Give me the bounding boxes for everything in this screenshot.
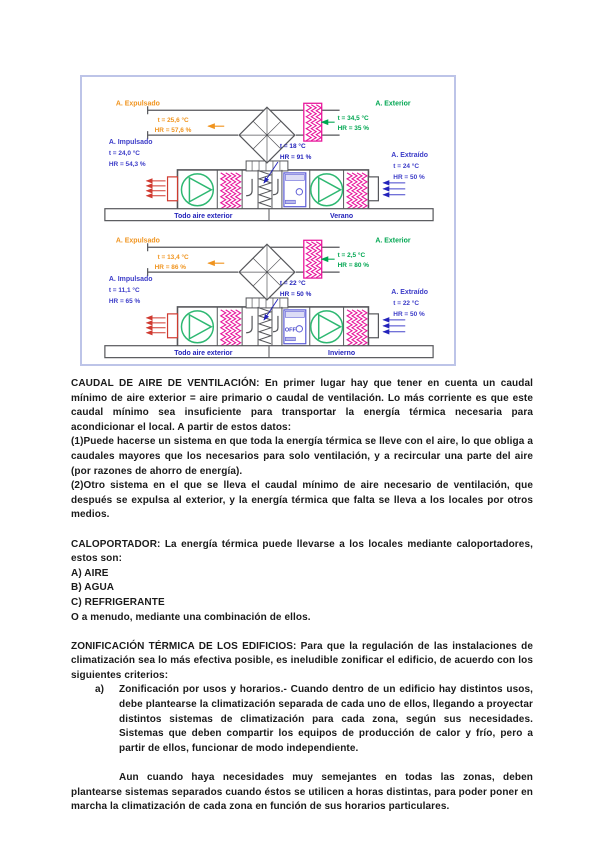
- expulsado-temp: t = 25,6 °C: [158, 116, 189, 124]
- extraido-hr: HR = 50 %: [393, 174, 425, 181]
- outdoor-coil-icon: [304, 103, 322, 141]
- document-page: Todo aire exterior Verano A. Expulsado t…: [0, 0, 600, 848]
- paragraph-zonificacion: ZONIFICACIÓN TÉRMICA DE LOS EDIFICIOS: P…: [71, 640, 533, 684]
- option-refrigerante: C) REFRIGERANTE: [71, 596, 533, 611]
- supply-air-arrows-icon: [147, 177, 178, 201]
- exterior-label: A. Exterior: [375, 237, 410, 244]
- cooling-box: [284, 173, 306, 207]
- expulsado-hr: HR = 57,6 %: [155, 127, 192, 134]
- extraido-label: A. Extraído: [391, 152, 428, 159]
- impulsado-temp: t = 24,0 °C: [109, 149, 140, 157]
- ahu-unit-invierno: OFF Todo aire exterior Invierno: [83, 222, 451, 362]
- paragraph-combinacion: O a menudo, mediante una combinación de …: [71, 611, 533, 626]
- exterior-temp: t = 2,5 °C: [338, 251, 366, 259]
- impulsado-temp: t = 11,1 °C: [109, 286, 140, 294]
- expulsado-temp: t = 13,4 °C: [158, 253, 189, 261]
- ahu-figure: Todo aire exterior Verano A. Expulsado t…: [80, 75, 456, 366]
- impulsado-label: A. Impulsado: [109, 139, 153, 146]
- bar-left-label: Todo aire exterior: [174, 213, 233, 220]
- cooling-box-label: OFF: [285, 327, 297, 333]
- heat-exchanger-icon: [239, 244, 295, 308]
- exterior-label: A. Exterior: [375, 100, 410, 107]
- option-aire: A) AIRE: [71, 567, 533, 582]
- paragraph-item1: (1)Puede hacerse un sistema en que toda …: [71, 435, 533, 479]
- exterior-hr: HR = 35 %: [338, 125, 370, 132]
- bar-right-label: Verano: [330, 213, 353, 220]
- impulsado-hr: HR = 65 %: [109, 298, 141, 305]
- heat-exchanger-icon: [239, 107, 295, 171]
- supply-air-arrows-icon: [147, 314, 178, 338]
- exterior-hr: HR = 80 %: [338, 262, 370, 269]
- extraido-hr: HR = 50 %: [393, 311, 425, 318]
- impulsado-label: A. Impulsado: [109, 276, 153, 283]
- bar-right-label: Invierno: [328, 350, 355, 357]
- cooling-box: OFF: [284, 310, 306, 344]
- option-agua: B) AGUA: [71, 581, 533, 596]
- extraido-temp: t = 24 °C: [393, 162, 419, 170]
- paragraph-caloportador: CALOPORTADOR: La energía térmica puede l…: [71, 538, 533, 567]
- extraido-temp: t = 22 °C: [393, 299, 419, 307]
- impulsado-hr: HR = 54,3 %: [109, 161, 146, 168]
- paragraph-item2: (2)Otro sistema en el que se lleva el ca…: [71, 479, 533, 523]
- ahu-unit-verano: Todo aire exterior Verano A. Expulsado t…: [83, 85, 451, 225]
- center-temp: t = 18 °C: [280, 142, 306, 150]
- extraido-label: A. Extraído: [391, 289, 428, 296]
- document-text: CAUDAL DE AIRE DE VENTILACIÓN: En primer…: [71, 377, 533, 815]
- bar-left-label: Todo aire exterior: [174, 350, 233, 357]
- center-temp: t = 22 °C: [280, 279, 306, 287]
- outdoor-coil-icon: [304, 240, 322, 278]
- unit-base-bar: Todo aire exterior Verano: [105, 209, 433, 221]
- list-item-a-text: Zonificación por usos y horarios.- Cuand…: [119, 684, 533, 753]
- expulsado-hr: HR = 86 %: [155, 264, 187, 271]
- list-item-a-marker: a): [95, 683, 104, 698]
- exterior-temp: t = 34,5 °C: [338, 114, 369, 122]
- center-hr: HR = 91 %: [280, 154, 312, 161]
- expulsado-label: A. Expulsado: [116, 100, 160, 107]
- center-hr: HR = 50 %: [280, 291, 312, 298]
- paragraph-aun-cuando: Aun cuando haya necesidades muy semejant…: [71, 771, 533, 815]
- expulsado-label: A. Expulsado: [116, 237, 160, 244]
- list-item-a: a) Zonificación por usos y horarios.- Cu…: [71, 683, 533, 756]
- paragraph-caudal: CAUDAL DE AIRE DE VENTILACIÓN: En primer…: [71, 377, 533, 435]
- unit-base-bar: Todo aire exterior Invierno: [105, 346, 433, 358]
